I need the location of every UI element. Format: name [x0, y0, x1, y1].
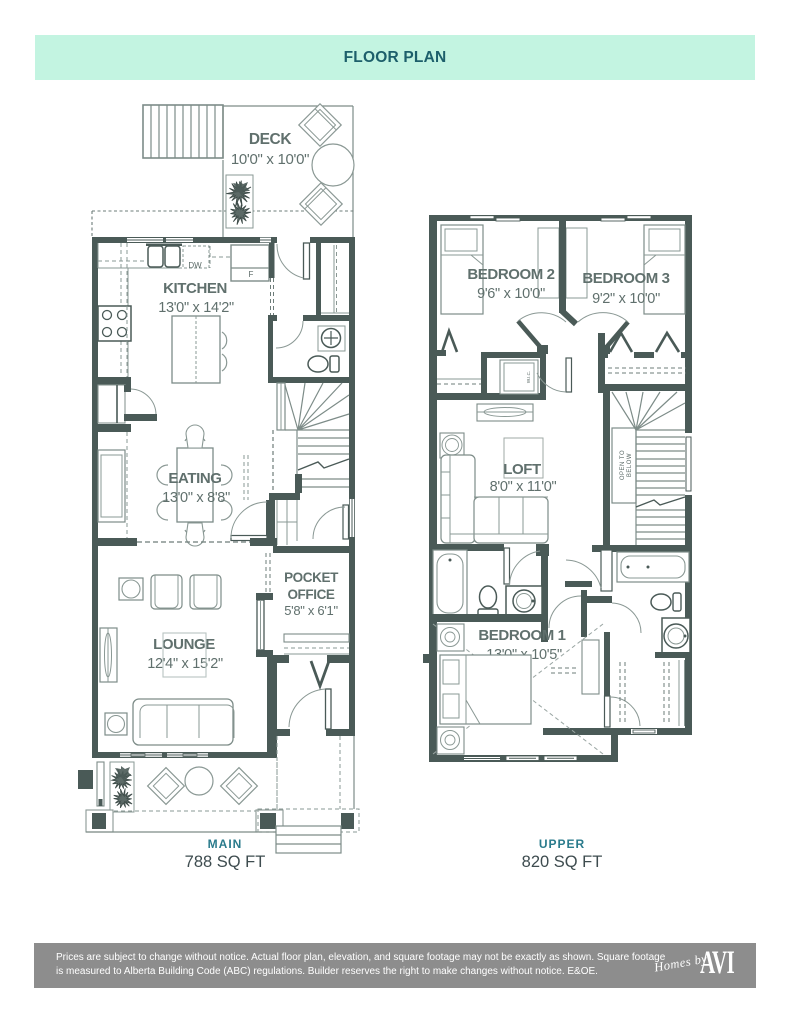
svg-text:BEDROOM 3: BEDROOM 3 — [582, 270, 669, 287]
svg-text:8'0" x 11'0": 8'0" x 11'0" — [490, 479, 557, 495]
svg-text:13'0" x 8'8": 13'0" x 8'8" — [162, 490, 230, 506]
svg-text:BEDROOM 1: BEDROOM 1 — [478, 627, 565, 644]
svg-text:BELOW: BELOW — [627, 453, 633, 477]
svg-text:DECK: DECK — [249, 131, 293, 148]
svg-text:BEDROOM 2: BEDROOM 2 — [467, 266, 554, 283]
svg-text:13'0" x 14'2": 13'0" x 14'2" — [158, 300, 234, 316]
svg-text:12'4" x 15'2": 12'4" x 15'2" — [147, 656, 223, 672]
svg-text:9'2" x 10'0": 9'2" x 10'0" — [592, 291, 660, 307]
svg-text:10'0" x 10'0": 10'0" x 10'0" — [231, 151, 309, 168]
svg-text:OPEN TO: OPEN TO — [620, 450, 626, 480]
svg-text:9'6" x 10'0": 9'6" x 10'0" — [477, 286, 545, 302]
svg-text:POCKET: POCKET — [284, 570, 339, 585]
svg-text:DW: DW — [188, 261, 202, 270]
svg-text:OFFICE: OFFICE — [287, 587, 334, 602]
svg-text:EATING: EATING — [168, 470, 221, 487]
svg-text:5'8" x 6'1": 5'8" x 6'1" — [284, 603, 338, 618]
svg-text:KITCHEN: KITCHEN — [163, 280, 227, 297]
svg-text:W.I.C.: W.I.C. — [526, 371, 531, 383]
svg-text:F: F — [249, 270, 254, 279]
svg-text:LOFT: LOFT — [503, 461, 541, 478]
